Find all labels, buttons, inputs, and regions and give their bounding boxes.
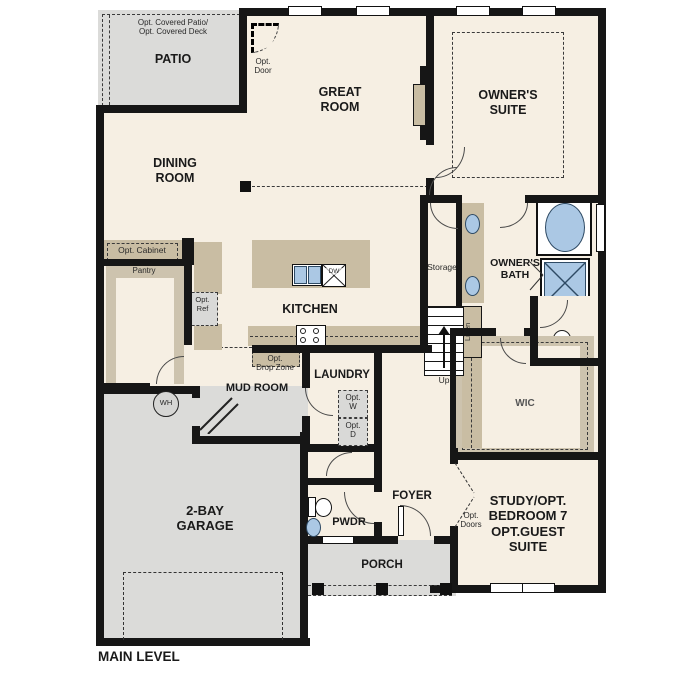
garage-label: 2-BAY GARAGE [160, 503, 250, 534]
kitchen-opening-dashed [220, 347, 252, 348]
porch-post [440, 583, 452, 595]
water-heater-label: WH [153, 399, 179, 408]
window [356, 6, 390, 16]
wall [96, 105, 247, 113]
wall [525, 195, 606, 203]
great-room-label: GREAT ROOM [298, 85, 382, 115]
wall [306, 536, 322, 544]
floor-plan: Opt. Covered Patio/ Opt. Covered Deck PA… [0, 0, 687, 687]
wall [104, 259, 192, 266]
wall [374, 522, 382, 544]
stairs-arrow-stem [443, 334, 445, 368]
kitchen-upper-cab-dashed [250, 336, 428, 337]
burner [313, 328, 319, 334]
wall [104, 383, 150, 391]
wall [302, 478, 382, 485]
window [522, 583, 555, 593]
opt-washer-label: Opt. W [339, 393, 367, 411]
garage-door-symbol [198, 392, 240, 434]
opt-door-label: Opt. Door [246, 57, 280, 75]
window [288, 6, 322, 16]
wall [252, 345, 432, 353]
porch-post [376, 583, 388, 595]
pantry-shelf-left [106, 278, 116, 384]
wall [192, 436, 308, 444]
sink-basin-right [308, 266, 321, 284]
pwdr-sink [306, 518, 321, 537]
study-label: STUDY/OPT. BEDROOM 7 OPT.GUEST SUITE [460, 493, 596, 554]
laundry-label: LAUNDRY [308, 369, 376, 383]
pantry-label: Pantry [114, 266, 174, 275]
pwdr-toilet-bowl [315, 498, 332, 517]
stairs-arrow-head [438, 326, 450, 335]
dining-room-label: DINING ROOM [135, 156, 215, 186]
fireplace-hearth [413, 84, 426, 126]
hall-shelf-dashed [471, 358, 472, 448]
structural-post [240, 181, 251, 192]
wall [96, 105, 104, 646]
owners-suite-label: OWNER'S SUITE [466, 88, 550, 118]
opt-dryer-label: Opt. D [339, 421, 367, 439]
garage-door-dashed [123, 572, 283, 640]
wall [420, 203, 428, 353]
mud-room-label: MUD ROOM [220, 382, 294, 395]
hall-shelf-strip [462, 358, 482, 448]
vanity-sink-1 [465, 214, 480, 234]
window [456, 6, 490, 16]
wall [450, 328, 456, 458]
foyer-label: FOYER [384, 490, 440, 504]
burner [300, 328, 306, 334]
porch-edge-dashed-2 [308, 595, 452, 596]
patio-dashed-edge [109, 15, 110, 105]
wall [598, 8, 606, 593]
porch-post [312, 583, 324, 595]
wic-label: WIC [504, 398, 546, 410]
window [490, 583, 523, 593]
wall [450, 328, 496, 336]
wall [450, 452, 606, 460]
patio-label: PATIO [136, 52, 210, 67]
owners-bath-label: OWNER'S BATH [484, 257, 546, 282]
dining-great-divider-dashed [252, 186, 428, 187]
window [522, 6, 556, 16]
opt-drop-zone-label: Opt. Drop Zone [243, 354, 307, 372]
wall [530, 358, 606, 366]
bathtub-basin [545, 203, 585, 252]
pwdr-label: PWDR [326, 516, 372, 529]
window [322, 536, 354, 544]
opt-ref-label: Opt. Ref [189, 296, 216, 313]
kitchen-tall-cabinets [194, 242, 222, 294]
burner [300, 337, 306, 343]
dishwasher-label: DW [324, 268, 344, 275]
wall [182, 238, 194, 265]
wall [420, 195, 457, 203]
burner [313, 337, 319, 343]
wall [374, 345, 382, 492]
wall [184, 259, 192, 345]
kitchen-tall-cabinets-lower [194, 324, 222, 350]
porch-label: PORCH [350, 559, 414, 573]
wall [530, 296, 538, 366]
sink-basin-left [294, 266, 307, 284]
vanity-sink-2 [465, 276, 480, 296]
opt-cabinet-label: Opt. Cabinet [108, 246, 176, 256]
window [596, 204, 605, 252]
kitchen-label: KITCHEN [270, 302, 350, 317]
plan-title: MAIN LEVEL [98, 649, 218, 665]
patio-note: Opt. Covered Patio/ Opt. Covered Deck [118, 18, 228, 36]
